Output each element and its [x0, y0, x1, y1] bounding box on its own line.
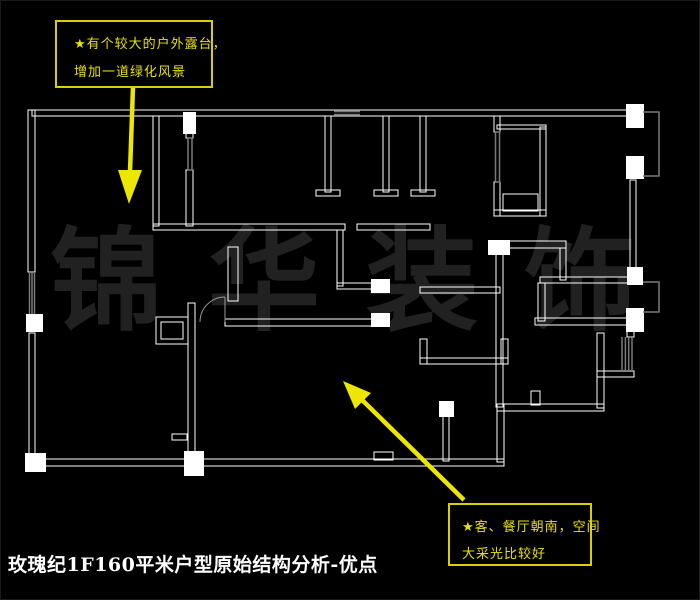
terrace-arrow	[118, 87, 142, 204]
annotation-living-line2: 大采光比较好	[462, 541, 590, 568]
annotation-living-line1: ★客、餐厅朝南，空间	[462, 514, 590, 541]
annotation-terrace-line1: ★有个较大的户外露台，	[74, 31, 211, 59]
living-arrow	[343, 381, 464, 500]
walls	[28, 110, 636, 466]
annotation-terrace-line2: 增加一道绿化风景	[74, 59, 211, 87]
floorplan-drawing	[0, 0, 700, 600]
annotation-terrace: ★有个较大的户外露台， 增加一道绿化风景	[55, 20, 213, 88]
page-title: 玫瑰纪1F160平米户型原始结构分析-优点	[8, 550, 378, 577]
door-arc	[200, 297, 225, 322]
floorplan-canvas: 锦华装饰	[0, 0, 700, 600]
column-blocks	[25, 104, 644, 476]
annotation-living: ★客、餐厅朝南，空间 大采光比较好	[448, 503, 592, 566]
